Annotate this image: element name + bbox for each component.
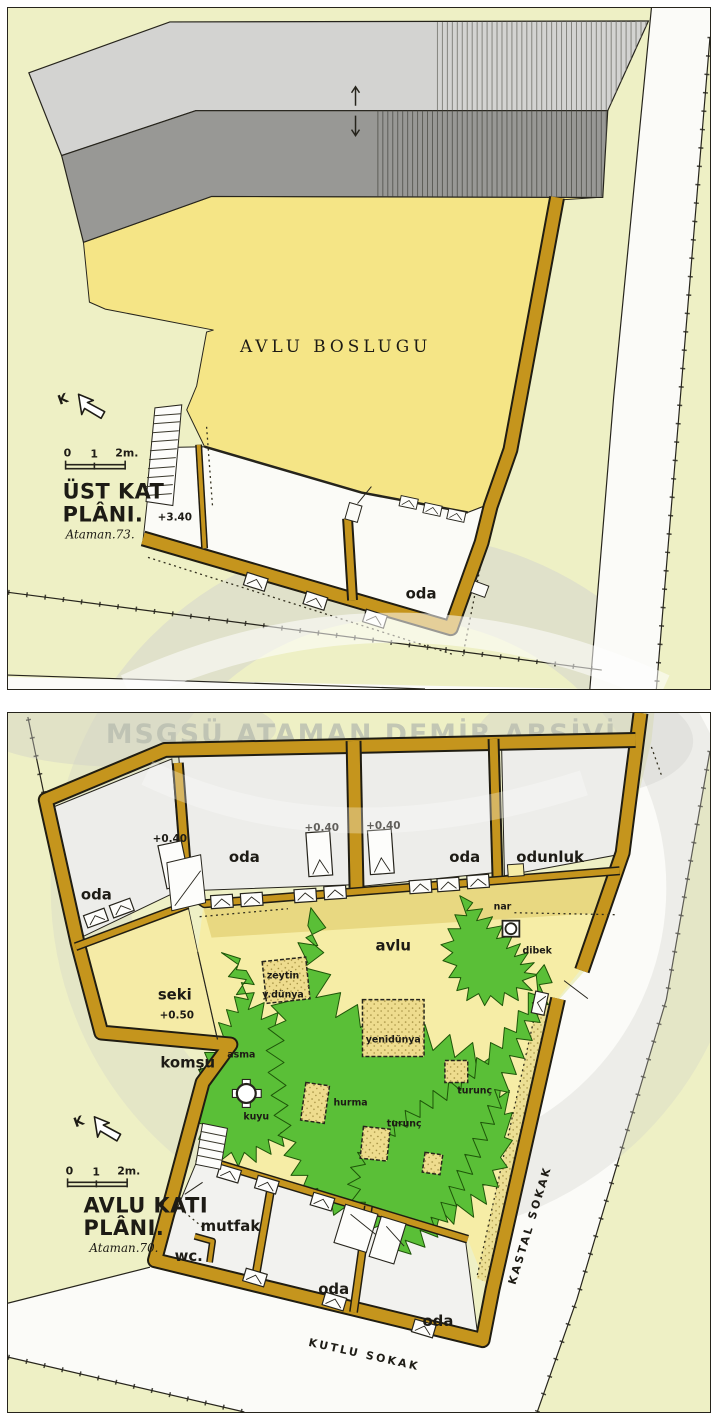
courtyard-floor-plan-panel: MSGSÜ ATAMAN DEMİR ARŞİVİ: [7, 712, 711, 1413]
room-label-oda-s2: oda: [422, 1312, 453, 1330]
room-label-oda-n2: oda: [449, 848, 480, 866]
scale-zero: 0: [66, 1164, 74, 1177]
dibek-mortar: [502, 921, 519, 937]
scale-zero: 0: [64, 447, 72, 460]
seki-level-label: +0.50: [160, 1010, 194, 1022]
room-label-oda-n1: oda: [229, 848, 260, 866]
turunc-planter-east: [445, 1061, 468, 1083]
tree-label-turunc-east: turunç: [457, 1085, 492, 1096]
door-opening: [367, 829, 394, 875]
architect-signature: Ataman.73.: [65, 527, 135, 541]
scale-two: 2m.: [117, 1164, 140, 1177]
object-label-dibek: dibek: [523, 946, 553, 957]
level-label: +3.40: [158, 511, 192, 523]
courtyard-label-avlu: avlu: [376, 937, 411, 955]
turunc-planter-south: [360, 1126, 390, 1161]
tree-label-hurma: hurma: [333, 1097, 367, 1108]
courtyard-label: AVLU BOSLUGU: [239, 336, 431, 356]
plan-title-line1: AVLU KATI: [83, 1193, 208, 1217]
room-label-oda: oda: [406, 584, 437, 602]
architect-signature: Ataman.70.: [88, 1241, 158, 1255]
tree-label-zeytin: zeytin: [267, 971, 299, 982]
tree-label-yenidunya: yenidünya: [366, 1035, 421, 1046]
upper-floor-plan-panel: AVLU BOSLUGU +3.40 oda K 0 1 2m. ÜST KAT…: [7, 7, 711, 690]
yenidunya-planter: [362, 1000, 424, 1057]
neighbor-label-komsu: komşu: [160, 1053, 215, 1071]
door-level-1: +0.40: [153, 833, 187, 845]
courtyard-floor-plan-drawing: MSGSÜ ATAMAN DEMİR ARŞİVİ: [8, 713, 710, 1412]
tree-label-turunc-south: turunç: [387, 1118, 422, 1129]
tree-label-asma: asma: [227, 1049, 255, 1060]
tree-label-nar: nar: [494, 902, 512, 913]
door-opening: [306, 831, 333, 877]
scale-one: 1: [90, 448, 98, 461]
room-label-mutfak: mutfak: [201, 1217, 262, 1235]
plan-title-line1: ÜST KAT: [63, 479, 165, 504]
room-label-wc: wc.: [175, 1247, 203, 1265]
small-planter: [422, 1152, 442, 1174]
object-label-kuyu: kuyu: [243, 1111, 269, 1122]
room-label-oda-nw: oda: [81, 886, 112, 904]
upper-floor-plan-drawing: AVLU BOSLUGU +3.40 oda K 0 1 2m. ÜST KAT…: [8, 8, 710, 689]
hurma-planter: [301, 1082, 330, 1123]
scale-two: 2m.: [115, 447, 138, 460]
room-label-seki: seki: [158, 986, 192, 1004]
plan-title-line2: PLÂNI.: [63, 501, 144, 526]
room-label-odunluk: odunluk: [516, 848, 585, 866]
tree-label-ydunya: y.dünya: [262, 990, 303, 1001]
seki-door-landing: [167, 855, 206, 911]
plan-title-line2: PLÂNI.: [83, 1215, 164, 1240]
scanned-plan-sheet: AVLU BOSLUGU +3.40 oda K 0 1 2m. ÜST KAT…: [0, 0, 721, 1417]
scale-one: 1: [92, 1165, 100, 1178]
room-label-oda-s1: oda: [318, 1280, 349, 1298]
